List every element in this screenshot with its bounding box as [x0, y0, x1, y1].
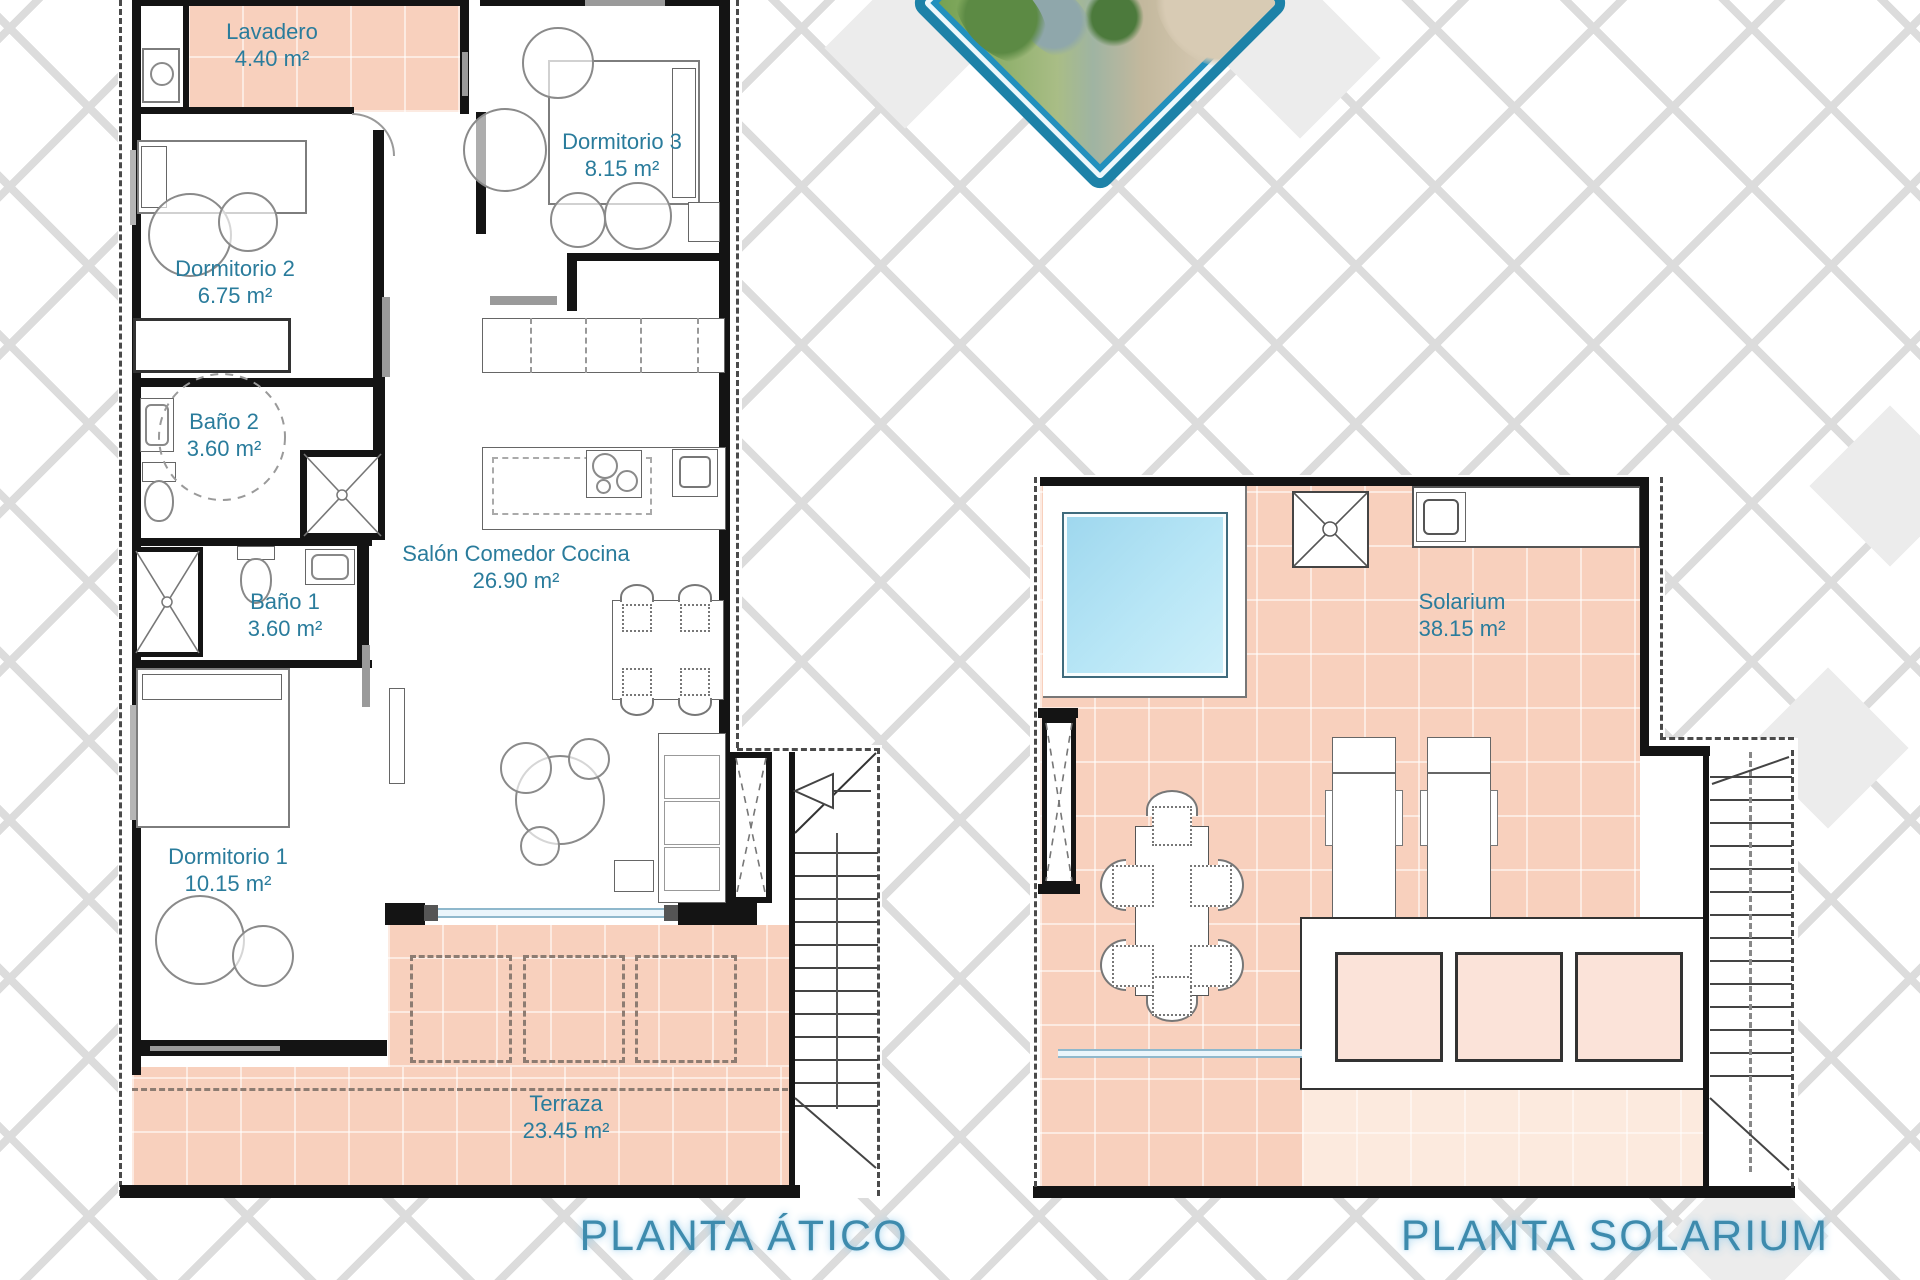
patio-seat: [1152, 806, 1192, 846]
room-name: Dormitorio 3: [562, 128, 682, 155]
room-label-dormitorio2: Dormitorio 2 6.75 m²: [175, 255, 295, 309]
pool: [1062, 512, 1228, 678]
room-name: Solarium: [1419, 588, 1506, 615]
plant-round: [568, 738, 610, 780]
shower-bano1: [132, 547, 203, 657]
lounger-armrest: [1490, 790, 1498, 846]
window: [150, 1046, 280, 1051]
plant-round: [463, 108, 547, 192]
toilet-tank: [142, 462, 176, 482]
lounger-armrest: [1395, 790, 1403, 846]
burner: [596, 479, 611, 494]
room-label-dormitorio1: Dormitorio 1 10.15 m²: [168, 843, 288, 897]
door-leaf: [362, 645, 370, 707]
room-name: Dormitorio 2: [175, 255, 295, 282]
wall: [1640, 477, 1649, 754]
room-area: 38.15 m²: [1419, 615, 1506, 642]
room-area: 6.75 m²: [175, 282, 295, 309]
closet-divider: [697, 318, 699, 373]
toilet-bowl: [144, 480, 174, 522]
aerial-photo-thumbnail: [909, 0, 1291, 194]
floor-plan-sheet: Lavadero 4.40 m² Dormitorio 3 8.15 m² Do…: [0, 0, 1920, 1280]
chair-round: [604, 182, 672, 250]
pillow: [142, 674, 282, 700]
stair-divider: [836, 833, 838, 1109]
terraza-awning-dashed: [410, 955, 512, 1063]
property-line-notch-h: [1660, 737, 1794, 740]
planter: [1575, 952, 1683, 1062]
elevator-shaft: [730, 752, 772, 903]
tv-unit: [389, 688, 405, 784]
skylight: [1292, 491, 1369, 568]
plan-title-atico: PLANTA ÁTICO: [579, 1212, 908, 1261]
lounger-headrest: [1427, 772, 1491, 774]
room-area: 3.60 m²: [248, 615, 323, 642]
wall: [132, 0, 462, 6]
glass-balustrade: [1058, 1049, 1302, 1058]
door-frame: [424, 905, 438, 921]
wardrobe: [133, 318, 291, 373]
sun-lounger: [1332, 737, 1396, 922]
bathroom-sink-basin: [145, 404, 169, 446]
closet-row: [482, 318, 725, 373]
window: [585, 0, 665, 6]
wall: [373, 130, 384, 310]
lounger-armrest: [1325, 790, 1333, 846]
dining-seat: [622, 668, 652, 696]
room-label-terraza: Terraza 23.45 m²: [523, 1090, 610, 1144]
room-floor-terraza-lower: [132, 1067, 790, 1187]
sun-lounger: [1427, 737, 1491, 922]
plant-round: [500, 742, 552, 794]
wall: [385, 903, 425, 925]
pillow: [141, 146, 167, 208]
property-line-left: [119, 0, 122, 1196]
closet-divider: [530, 318, 532, 373]
property-line-left: [1034, 477, 1037, 1187]
lower-terrace-strip: [1302, 1090, 1705, 1188]
plant-round: [155, 895, 245, 985]
plan-title-solarium: PLANTA SOLARIUM: [1401, 1212, 1829, 1261]
shaded-diamond: [1809, 405, 1920, 566]
planter: [1455, 952, 1563, 1062]
room-area: 23.45 m²: [523, 1117, 610, 1144]
sofa-cushion: [664, 801, 720, 845]
wall: [1640, 746, 1710, 756]
room-name: Salón Comedor Cocina: [402, 540, 629, 567]
patio-seat: [1190, 945, 1232, 987]
wall: [1038, 708, 1078, 718]
wall: [132, 378, 384, 387]
door-leaf: [462, 52, 468, 96]
lounger-headrest: [1332, 772, 1396, 774]
door-frame: [664, 905, 678, 921]
burner: [592, 453, 618, 479]
dining-seat: [680, 604, 710, 632]
wall: [140, 107, 354, 114]
wall: [120, 1185, 800, 1198]
terraza-awning-dashed: [523, 955, 625, 1063]
kitchen-sink-basin: [679, 456, 711, 488]
bathroom-sink-basin: [311, 554, 349, 580]
room-name: Terraza: [523, 1090, 610, 1117]
patio-seat: [1190, 865, 1232, 907]
wall: [1040, 477, 1648, 486]
lounger-armrest: [1420, 790, 1428, 846]
patio-seat: [1152, 976, 1192, 1016]
room-name: Dormitorio 1: [168, 843, 288, 870]
room-area: 26.90 m²: [402, 567, 629, 594]
planter: [1335, 952, 1443, 1062]
nightstand: [688, 202, 720, 242]
door-leaf: [490, 296, 557, 305]
plant-round: [520, 826, 560, 866]
room-label-dormitorio3: Dormitorio 3 8.15 m²: [562, 128, 682, 182]
wall: [577, 253, 725, 261]
chair-round: [522, 27, 594, 99]
property-line-notch: [1660, 477, 1663, 739]
wall: [132, 660, 372, 668]
shower-bano2: [300, 450, 385, 540]
chair-round: [218, 192, 278, 252]
wall: [1703, 755, 1709, 1188]
wall: [1033, 1186, 1795, 1198]
property-line-stair-top: [737, 748, 880, 751]
wall: [678, 903, 757, 925]
burner: [616, 470, 638, 492]
closet-divider: [585, 318, 587, 373]
dining-seat: [680, 668, 710, 696]
room-name: Baño 2: [187, 408, 262, 435]
property-line-right-upper: [736, 0, 739, 748]
room-area: 3.60 m²: [187, 435, 262, 462]
terraza-boundary-dashed: [132, 1088, 788, 1091]
room-label-salon: Salón Comedor Cocina 26.90 m²: [402, 540, 629, 594]
washing-machine-drum: [150, 62, 174, 86]
rooftop-sink-basin: [1423, 499, 1459, 535]
room-area: 10.15 m²: [168, 870, 288, 897]
sofa-cushion: [664, 755, 720, 799]
room-name: Baño 1: [248, 588, 323, 615]
terraza-awning-dashed: [635, 955, 737, 1063]
room-label-bano2: Baño 2 3.60 m²: [187, 408, 262, 462]
dining-seat: [622, 604, 652, 632]
closet-divider: [640, 318, 642, 373]
patio-seat: [1112, 945, 1154, 987]
wall: [183, 0, 189, 112]
stair-centerline: [1749, 752, 1752, 1172]
chair-round: [550, 192, 606, 248]
room-area: 4.40 m²: [226, 45, 318, 72]
room-label-bano1: Baño 1 3.60 m²: [248, 588, 323, 642]
elevator-shaft: [1042, 718, 1076, 886]
room-area: 8.15 m²: [562, 155, 682, 182]
chair-round: [232, 925, 294, 987]
patio-seat: [1112, 865, 1154, 907]
room-label-solarium: Solarium 38.15 m²: [1419, 588, 1506, 642]
window: [130, 150, 136, 225]
sofa-cushion: [664, 847, 720, 891]
door-leaf: [382, 297, 390, 377]
room-label-lavadero: Lavadero 4.40 m²: [226, 18, 318, 72]
room-name: Lavadero: [226, 18, 318, 45]
side-table: [614, 860, 654, 892]
wall: [567, 253, 577, 311]
sliding-glass-door: [438, 908, 666, 918]
